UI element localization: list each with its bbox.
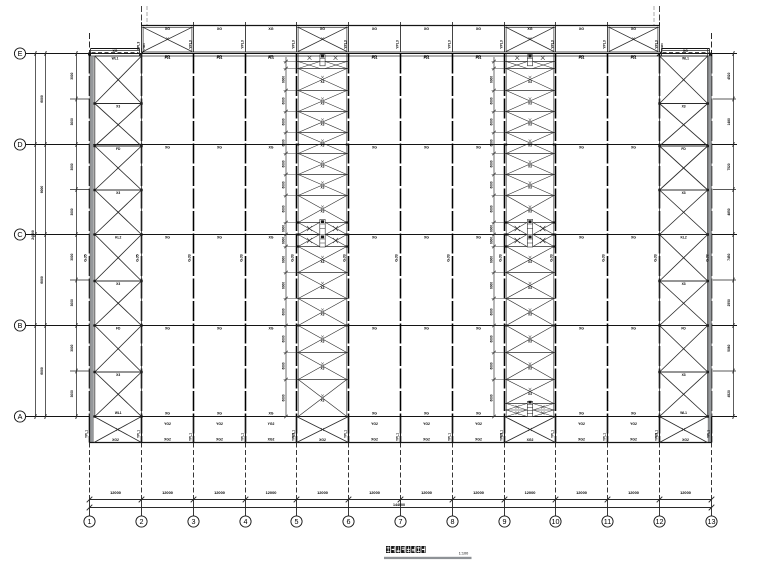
svg-text:X3: X3: [321, 123, 325, 127]
svg-text:6000: 6000: [282, 118, 286, 125]
svg-text:PL1: PL1: [372, 56, 378, 60]
svg-text:9: 9: [503, 517, 507, 526]
svg-text:PL1: PL1: [631, 56, 637, 60]
svg-text:XG: XG: [579, 327, 584, 331]
svg-text:6000: 6000: [490, 139, 494, 146]
svg-text:XG2: XG2: [475, 438, 482, 442]
svg-text:12000: 12000: [680, 490, 691, 495]
svg-text:XG: XG: [217, 327, 222, 331]
svg-text:GJ3: GJ3: [445, 253, 450, 261]
svg-text:6000: 6000: [282, 256, 286, 263]
svg-text:YPL1: YPL1: [396, 433, 400, 441]
svg-text:YPL3: YPL3: [602, 40, 606, 49]
svg-text:YG2: YG2: [475, 422, 482, 426]
svg-text:4520: 4520: [727, 72, 731, 79]
svg-text:7460: 7460: [142, 43, 146, 50]
svg-text:FD: FD: [681, 147, 686, 151]
svg-text:YPL3: YPL3: [447, 40, 451, 49]
svg-text:XG: XG: [268, 411, 273, 415]
svg-text:6000: 6000: [490, 237, 494, 244]
svg-text:X3: X3: [682, 282, 686, 286]
svg-text:12000: 12000: [162, 490, 173, 495]
svg-text:XG: XG: [217, 146, 222, 150]
svg-text:3000: 3000: [70, 163, 74, 170]
svg-text:XG: XG: [372, 411, 377, 415]
svg-text:2550: 2550: [727, 299, 731, 306]
svg-text:X3: X3: [321, 286, 325, 290]
svg-text:1480: 1480: [727, 118, 731, 125]
svg-text:XG: XG: [476, 27, 481, 31]
svg-text:XG: XG: [217, 236, 222, 240]
svg-text:6000: 6000: [490, 181, 494, 188]
svg-text:XG: XG: [579, 236, 584, 240]
svg-text:YG2: YG2: [578, 422, 585, 426]
svg-text:6000: 6000: [490, 308, 494, 315]
svg-text:YG2: YG2: [216, 422, 223, 426]
svg-text:PL1: PL1: [268, 56, 274, 60]
svg-text:1:100: 1:100: [459, 551, 469, 555]
svg-text:144000: 144000: [393, 503, 405, 507]
svg-text:X3: X3: [321, 313, 325, 317]
svg-text:XG: XG: [579, 27, 584, 31]
svg-text:PL1: PL1: [217, 56, 223, 60]
svg-text:GJ3: GJ3: [497, 253, 502, 261]
svg-text:XG2: XG2: [268, 438, 275, 442]
svg-text:GJ3: GJ3: [393, 253, 398, 261]
svg-text:XG2: XG2: [527, 438, 534, 442]
svg-text:PL1: PL1: [476, 56, 482, 60]
svg-text:6000: 6000: [490, 282, 494, 289]
svg-text:YPL1: YPL1: [603, 433, 607, 441]
svg-text:6000: 6000: [490, 76, 494, 83]
svg-text:GJ3: GJ3: [600, 253, 605, 261]
svg-text:X3: X3: [321, 260, 325, 264]
svg-text:XG: XG: [268, 236, 273, 240]
svg-text:6000: 6000: [282, 237, 286, 244]
svg-text:6000: 6000: [282, 160, 286, 167]
svg-text:12000: 12000: [110, 490, 121, 495]
svg-text:XG: XG: [165, 146, 170, 150]
svg-text:12000: 12000: [576, 490, 587, 495]
svg-text:XG2: XG2: [112, 438, 119, 442]
svg-text:1: 1: [88, 517, 92, 526]
svg-text:E: E: [18, 49, 23, 58]
svg-text:6000: 6000: [282, 76, 286, 83]
svg-text:X3: X3: [528, 102, 532, 106]
svg-text:YPL3: YPL3: [499, 40, 503, 49]
svg-text:XG: XG: [631, 27, 636, 31]
svg-text:GJ3: GJ3: [238, 253, 243, 261]
svg-text:FD: FD: [116, 327, 121, 331]
svg-text:6000: 6000: [282, 225, 286, 232]
svg-text:X3: X3: [321, 186, 325, 190]
svg-text:4: 4: [244, 517, 248, 526]
svg-text:X3: X3: [321, 102, 325, 106]
svg-text:GJ3: GJ3: [289, 253, 294, 261]
svg-text:13: 13: [708, 517, 716, 526]
svg-text:YPL1: YPL1: [291, 430, 295, 438]
svg-text:6: 6: [347, 517, 351, 526]
svg-text:FD: FD: [116, 147, 121, 151]
svg-text:XG2: XG2: [164, 438, 171, 442]
svg-text:3000: 3000: [70, 118, 74, 125]
svg-text:XG: XG: [217, 411, 222, 415]
svg-text:2: 2: [140, 517, 144, 526]
svg-text:YG2: YG2: [371, 422, 378, 426]
svg-text:6000: 6000: [40, 367, 44, 375]
svg-text:YPL3: YPL3: [291, 40, 295, 49]
svg-text:6000: 6000: [282, 308, 286, 315]
svg-text:X3: X3: [528, 123, 532, 127]
svg-text:YPL1: YPL1: [706, 430, 710, 438]
svg-text:YPL3: YPL3: [654, 40, 658, 49]
svg-text:C: C: [17, 230, 22, 239]
svg-text:YPL1: YPL1: [84, 430, 88, 438]
svg-text:PL1: PL1: [424, 56, 430, 60]
svg-text:KL2: KL2: [680, 236, 686, 240]
svg-text:X3: X3: [321, 399, 325, 403]
svg-text:XG: XG: [527, 27, 532, 31]
svg-text:6000: 6000: [282, 205, 286, 212]
svg-text:WL1: WL1: [115, 411, 122, 415]
svg-text:XG2: XG2: [371, 438, 378, 442]
svg-text:X3: X3: [321, 210, 325, 214]
svg-text:X3: X3: [528, 392, 532, 396]
svg-text:XG: XG: [683, 49, 688, 53]
svg-text:XG: XG: [165, 27, 170, 31]
svg-text:6000: 6000: [490, 394, 494, 401]
svg-text:X3: X3: [321, 367, 325, 371]
svg-text:XG: XG: [165, 327, 170, 331]
svg-text:YPL3: YPL3: [550, 40, 554, 49]
svg-text:3000: 3000: [70, 344, 74, 351]
svg-text:12000: 12000: [525, 490, 536, 495]
svg-text:B: B: [18, 321, 23, 330]
svg-text:XG: XG: [476, 146, 481, 150]
svg-text:XG: XG: [579, 411, 584, 415]
svg-text:XG: XG: [217, 27, 222, 31]
svg-text:XG: XG: [631, 327, 636, 331]
svg-text:6000: 6000: [490, 335, 494, 342]
svg-text:YPL1: YPL1: [241, 433, 245, 441]
svg-text:YPL3: YPL3: [188, 40, 192, 49]
svg-text:XG2: XG2: [682, 438, 689, 442]
svg-text:X3: X3: [321, 80, 325, 84]
svg-text:YG2: YG2: [423, 422, 430, 426]
svg-text:YPL3: YPL3: [395, 40, 399, 49]
svg-text:24000: 24000: [31, 230, 35, 240]
svg-text:6000: 6000: [490, 362, 494, 369]
svg-text:GJ5: GJ5: [134, 253, 139, 261]
svg-text:XG2: XG2: [216, 438, 223, 442]
svg-text:6000: 6000: [282, 97, 286, 104]
svg-text:12000: 12000: [628, 490, 639, 495]
svg-text:XG: XG: [372, 236, 377, 240]
svg-text:X3: X3: [528, 260, 532, 264]
svg-text:X3: X3: [116, 191, 120, 195]
svg-text:XG2: XG2: [630, 438, 637, 442]
svg-text:8: 8: [451, 517, 455, 526]
svg-text:6000: 6000: [282, 181, 286, 188]
svg-text:YPL1: YPL1: [136, 430, 140, 438]
svg-text:3000: 3000: [70, 390, 74, 397]
svg-text:6000: 6000: [490, 225, 494, 232]
svg-text:XG: XG: [476, 411, 481, 415]
svg-text:GJ3: GJ3: [186, 253, 191, 261]
svg-text:10: 10: [552, 517, 560, 526]
svg-text:XG: XG: [424, 27, 429, 31]
svg-text:XG2: XG2: [319, 438, 326, 442]
svg-text:6000: 6000: [282, 394, 286, 401]
svg-text:XG: XG: [372, 27, 377, 31]
svg-text:XG: XG: [113, 49, 118, 53]
svg-text:WL1: WL1: [682, 56, 689, 60]
svg-text:12000: 12000: [317, 490, 328, 495]
svg-text:XG: XG: [165, 236, 170, 240]
svg-text:PL1: PL1: [165, 56, 171, 60]
svg-text:X3: X3: [528, 144, 532, 148]
svg-text:X3: X3: [116, 373, 120, 377]
svg-text:GJ3: GJ3: [548, 253, 553, 261]
svg-text:XG: XG: [631, 236, 636, 240]
svg-text:YPL3: YPL3: [343, 40, 347, 49]
svg-text:6000: 6000: [40, 186, 44, 194]
svg-text:X3: X3: [528, 340, 532, 344]
svg-text:6000: 6000: [282, 362, 286, 369]
svg-text:5: 5: [295, 517, 299, 526]
svg-text:XG: XG: [631, 146, 636, 150]
svg-text:6000: 6000: [282, 282, 286, 289]
svg-text:XG: XG: [476, 236, 481, 240]
svg-text:D: D: [17, 140, 22, 149]
svg-text:XG: XG: [165, 411, 170, 415]
svg-text:4520: 4520: [727, 390, 731, 397]
svg-text:X3: X3: [528, 286, 532, 290]
svg-text:X3: X3: [682, 105, 686, 109]
svg-text:XG: XG: [268, 327, 273, 331]
svg-text:6000: 6000: [282, 139, 286, 146]
svg-text:6000: 6000: [490, 205, 494, 212]
svg-text:GJ3: GJ3: [652, 253, 657, 261]
svg-text:12000: 12000: [421, 490, 432, 495]
svg-text:X3: X3: [528, 165, 532, 169]
svg-text:XG: XG: [372, 327, 377, 331]
svg-text:YG2: YG2: [268, 422, 275, 426]
svg-text:X3: X3: [682, 373, 686, 377]
svg-text:XG: XG: [631, 411, 636, 415]
svg-text:6000: 6000: [490, 256, 494, 263]
svg-text:XG: XG: [424, 411, 429, 415]
svg-text:X3: X3: [528, 80, 532, 84]
svg-text:6000: 6000: [40, 95, 44, 103]
svg-text:YPL1: YPL1: [654, 430, 658, 438]
svg-text:6000: 6000: [282, 335, 286, 342]
svg-text:GJ3: GJ3: [341, 253, 346, 261]
svg-text:KL2: KL2: [115, 236, 121, 240]
svg-text:XG: XG: [424, 236, 429, 240]
svg-text:11: 11: [604, 517, 611, 526]
svg-text:6000: 6000: [490, 118, 494, 125]
svg-text:XG: XG: [476, 327, 481, 331]
svg-text:YPL1: YPL1: [448, 433, 452, 441]
svg-text:X3: X3: [528, 313, 532, 317]
svg-text:5080: 5080: [727, 344, 731, 351]
svg-text:3000: 3000: [70, 299, 74, 306]
svg-text:12: 12: [656, 517, 664, 526]
svg-text:XG: XG: [424, 146, 429, 150]
svg-text:X3: X3: [116, 105, 120, 109]
svg-text:X3: X3: [528, 186, 532, 190]
svg-text:XG2: XG2: [423, 438, 430, 442]
svg-text:YG2: YG2: [630, 422, 637, 426]
svg-text:XG: XG: [268, 27, 273, 31]
svg-text:GJ3: GJ3: [704, 253, 709, 261]
svg-text:X3: X3: [321, 165, 325, 169]
svg-text:YPL3: YPL3: [240, 40, 244, 49]
svg-text:YPL1: YPL1: [499, 430, 503, 438]
svg-text:XG2: XG2: [578, 438, 585, 442]
svg-text:FD: FD: [681, 327, 686, 331]
svg-text:6000: 6000: [40, 276, 44, 284]
svg-text:4850: 4850: [727, 208, 731, 215]
svg-text:YPL1: YPL1: [550, 430, 554, 438]
svg-text:YPL1: YPL1: [189, 433, 193, 441]
svg-text:7520: 7520: [727, 163, 731, 170]
svg-text:PL1: PL1: [579, 56, 585, 60]
svg-text:XG: XG: [268, 146, 273, 150]
svg-text:X3: X3: [116, 282, 120, 286]
svg-text:X3: X3: [682, 191, 686, 195]
svg-text:WL1: WL1: [680, 411, 687, 415]
svg-text:3000: 3000: [70, 253, 74, 260]
svg-text:3000: 3000: [70, 208, 74, 215]
svg-text:7450: 7450: [727, 253, 731, 260]
svg-text:XG: XG: [424, 327, 429, 331]
svg-text:YPL1: YPL1: [343, 430, 347, 438]
svg-text:X3: X3: [321, 144, 325, 148]
svg-text:X3: X3: [528, 367, 532, 371]
svg-text:XG: XG: [372, 146, 377, 150]
svg-text:YG2: YG2: [164, 422, 171, 426]
svg-text:12000: 12000: [214, 490, 225, 495]
svg-text:12000: 12000: [473, 490, 484, 495]
svg-text:6000: 6000: [490, 97, 494, 104]
svg-text:X3: X3: [321, 340, 325, 344]
svg-text:WL1: WL1: [112, 56, 119, 60]
svg-text:12000: 12000: [369, 490, 380, 495]
svg-text:GJ5: GJ5: [82, 253, 87, 261]
svg-text:6000: 6000: [490, 160, 494, 167]
svg-text:12000: 12000: [266, 490, 277, 495]
svg-text:X3: X3: [528, 210, 532, 214]
svg-text:A: A: [18, 412, 23, 421]
svg-text:XG: XG: [320, 27, 325, 31]
svg-text:3: 3: [192, 517, 196, 526]
svg-text:3000: 3000: [70, 72, 74, 79]
svg-text:7: 7: [399, 517, 403, 526]
svg-text:XG: XG: [579, 146, 584, 150]
